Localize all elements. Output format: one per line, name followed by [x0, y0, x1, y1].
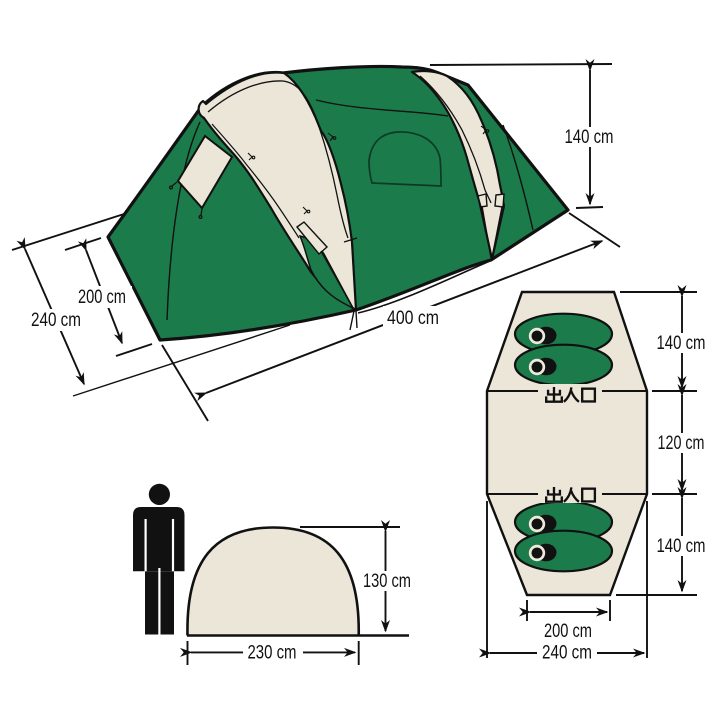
svg-text:140 cm: 140 cm [565, 126, 614, 148]
svg-text:140 cm: 140 cm [657, 332, 706, 354]
svg-text:200 cm: 200 cm [544, 620, 592, 642]
svg-text:240 cm: 240 cm [31, 309, 81, 331]
svg-text:120 cm: 120 cm [658, 432, 705, 454]
svg-text:130 cm: 130 cm [363, 570, 411, 592]
svg-text:200 cm: 200 cm [78, 286, 126, 308]
svg-text:240 cm: 240 cm [542, 642, 592, 664]
svg-text:400 cm: 400 cm [387, 307, 439, 329]
svg-text:140 cm: 140 cm [657, 535, 706, 557]
svg-text:230 cm: 230 cm [248, 641, 297, 663]
